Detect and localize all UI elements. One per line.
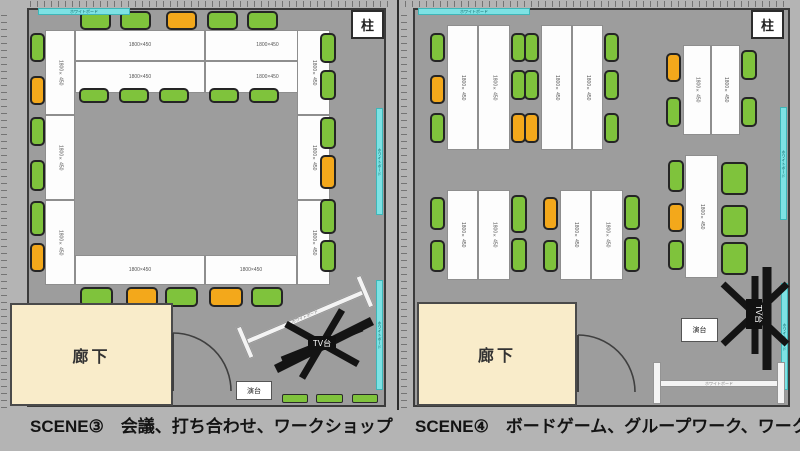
chair xyxy=(741,50,757,80)
chair xyxy=(159,88,189,103)
table-size-label: 1800×450 xyxy=(554,75,559,100)
pillar-label-scene4: 柱 xyxy=(751,10,784,39)
chair xyxy=(668,203,684,232)
chair xyxy=(666,97,681,127)
chair xyxy=(543,240,558,272)
table-size-label: 1800×450 xyxy=(695,77,700,102)
chair xyxy=(79,88,109,103)
table-size-label: 1800×450 xyxy=(256,43,278,48)
table: 1800×450 xyxy=(560,190,591,280)
floorplan-page: { "labels": { "pillar": "柱", "corridor":… xyxy=(0,0,800,451)
chair xyxy=(207,11,238,30)
table: 1800×450 xyxy=(75,30,205,61)
chair xyxy=(320,240,336,272)
whiteboard-text: ホワイトボード xyxy=(460,10,488,14)
table: 1800×450 xyxy=(683,45,711,135)
table-size-label: 1800×450 xyxy=(311,230,316,255)
chair xyxy=(511,238,527,272)
chair xyxy=(524,113,539,143)
chair xyxy=(30,76,45,105)
whiteboard-text: ホワイトボード xyxy=(378,321,382,349)
whiteboard-text: ホワイトボード xyxy=(782,150,786,178)
table-size-label: 1800×450 xyxy=(605,222,610,247)
stacked-seat-strip xyxy=(316,394,343,403)
table-size-label: 1800×450 xyxy=(699,204,704,229)
chair xyxy=(209,88,239,103)
table: 1800×450 xyxy=(75,255,205,285)
tv-stand-text: TV台 xyxy=(313,338,331,348)
chair xyxy=(30,160,45,191)
table-size-label: 1800×450 xyxy=(492,75,497,100)
caption-scene3: SCENE③ 会議、打ち合わせ、ワークショップ xyxy=(30,412,393,437)
wall-whiteboard: ホワイトボード xyxy=(376,280,383,390)
chair xyxy=(430,33,445,62)
chair xyxy=(320,199,336,234)
table: 1800×450 xyxy=(711,45,740,135)
table: 1800×450 xyxy=(591,190,623,280)
lectern-scene3: 演台 xyxy=(236,381,272,400)
corridor-scene4: 廊下 xyxy=(417,302,577,406)
chair xyxy=(249,88,279,103)
chair xyxy=(320,155,336,189)
lectern-text: 演台 xyxy=(247,386,261,396)
chair xyxy=(511,195,527,233)
whiteboard-text: ホワイトボード xyxy=(378,148,382,176)
chair xyxy=(666,53,681,82)
chair xyxy=(624,237,640,272)
wall-whiteboard: ホワイトボード xyxy=(376,108,383,215)
table-size-label: 1800×450 xyxy=(573,222,578,247)
chair xyxy=(721,162,748,195)
table-size-label: 1800×450 xyxy=(492,222,497,247)
table-size-label: 1800×450 xyxy=(256,75,278,80)
chair xyxy=(624,195,640,230)
chair xyxy=(30,201,45,236)
chair xyxy=(604,33,619,62)
tv-stand-icon-scene4: TV台 xyxy=(715,262,790,377)
whiteboard-text: ホワイトボード xyxy=(705,382,733,386)
table-size-label: 1800×450 xyxy=(129,268,151,273)
chair xyxy=(209,287,243,307)
chair xyxy=(543,197,558,230)
table-size-label: 1800×450 xyxy=(58,60,63,85)
tv-stand-icon-scene3: TV台 xyxy=(272,302,377,382)
chair xyxy=(166,11,197,30)
table-size-label: 1800×450 xyxy=(129,43,151,48)
chair xyxy=(668,240,684,270)
table-size-label: 1800×450 xyxy=(460,75,465,100)
table-size-label: 1800×450 xyxy=(58,145,63,170)
pillar-text: 柱 xyxy=(361,15,374,34)
table-size-label: 1800×450 xyxy=(585,75,590,100)
table: 1800×450 xyxy=(541,25,572,150)
whiteboard-board: ホワイトボード xyxy=(660,380,778,387)
table: 1800×450 xyxy=(447,25,478,150)
lectern-scene4: 演台 xyxy=(681,318,718,342)
chair xyxy=(721,205,748,237)
corridor-text: 廊下 xyxy=(478,342,516,366)
wall-whiteboard: ホワイトボード xyxy=(780,107,787,220)
chair xyxy=(30,243,45,272)
wall-whiteboard: ホワイトボード xyxy=(418,8,530,15)
table-size-label: 1800×450 xyxy=(311,60,316,85)
table: 1800×450 xyxy=(447,190,478,280)
chair xyxy=(604,70,619,100)
pillar-text: 柱 xyxy=(761,15,774,34)
table: 1800×450 xyxy=(478,25,510,150)
chair xyxy=(320,117,336,149)
chair xyxy=(668,160,684,192)
chair xyxy=(430,75,445,104)
wall-whiteboard: ホワイトボード xyxy=(38,8,130,15)
table: 1800×450 xyxy=(45,200,75,285)
stacked-seat-strip xyxy=(282,394,308,403)
stacked-seat-strip xyxy=(352,394,378,403)
chair xyxy=(430,197,445,230)
table: 1800×450 xyxy=(685,155,718,278)
corridor-text: 廊下 xyxy=(72,343,110,367)
chair xyxy=(30,117,45,146)
chair xyxy=(524,33,539,62)
table-size-label: 1800×450 xyxy=(723,77,728,102)
whiteboard-text: ホワイトボード xyxy=(70,10,98,14)
chair xyxy=(430,240,445,272)
table: 1800×450 xyxy=(205,255,297,285)
chair xyxy=(30,33,45,62)
pillar-label-scene3: 柱 xyxy=(351,10,384,39)
tv-stand-text: TV台 xyxy=(754,305,764,323)
chair xyxy=(247,11,278,30)
lectern-text: 演台 xyxy=(693,325,707,335)
table-size-label: 1800×450 xyxy=(240,268,262,273)
table: 1800×450 xyxy=(45,30,75,115)
door-arc-scene4 xyxy=(565,325,650,400)
chair xyxy=(604,113,619,143)
table: 1800×450 xyxy=(572,25,603,150)
table-size-label: 1800×450 xyxy=(460,222,465,247)
table-size-label: 1800×450 xyxy=(311,145,316,170)
chair xyxy=(119,88,149,103)
chair xyxy=(320,70,336,100)
caption-scene4: SCENE④ ボードゲーム、グループワーク、ワークショップ xyxy=(415,412,800,437)
chair xyxy=(430,113,445,143)
table-size-label: 1800×450 xyxy=(129,75,151,80)
table-size-label: 1800×450 xyxy=(58,230,63,255)
chair xyxy=(741,97,757,127)
table: 1800×450 xyxy=(45,115,75,200)
table: 1800×450 xyxy=(478,190,510,280)
chair xyxy=(524,70,539,100)
chair xyxy=(320,33,336,63)
corridor-scene3: 廊下 xyxy=(10,303,173,406)
